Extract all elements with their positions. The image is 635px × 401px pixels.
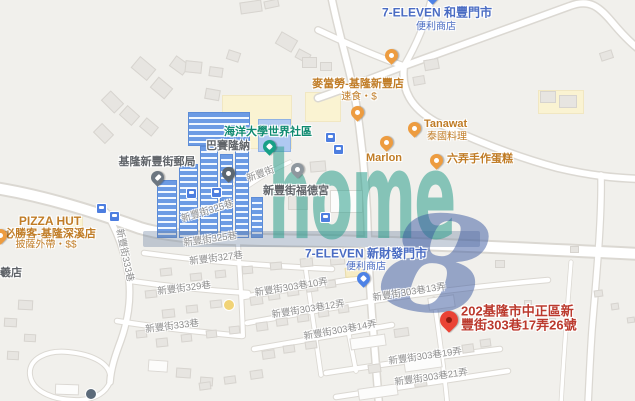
building xyxy=(611,302,620,310)
building xyxy=(199,381,212,391)
poi-label-barcelona[interactable]: 巴賽隆納 xyxy=(206,137,250,153)
highlighted-apartment-building xyxy=(251,197,263,238)
building xyxy=(540,91,556,103)
building xyxy=(249,369,263,380)
highlighted-apartment-building xyxy=(179,164,198,238)
bus-stop-icon[interactable] xyxy=(320,212,331,223)
poi-sublabel-seven-xincai: 便利商店 xyxy=(346,258,386,273)
building xyxy=(261,349,275,360)
building xyxy=(594,289,604,297)
building xyxy=(479,338,491,347)
building xyxy=(255,321,268,332)
map-canvas[interactable]: home 8 7-ELEVEN 和豐門市 便利商店 麥當勞-基隆新豐店 速食・$… xyxy=(0,0,635,401)
building xyxy=(461,343,474,354)
building xyxy=(186,304,199,313)
highlighted-apartment-building xyxy=(235,146,249,238)
bus-stop-icon[interactable] xyxy=(109,211,120,222)
building xyxy=(283,344,296,354)
building xyxy=(229,325,241,334)
building xyxy=(570,246,579,253)
poi-sublabel-seven-hefeng: 便利商店 xyxy=(416,18,456,33)
building xyxy=(148,359,169,372)
poi-label-post-office[interactable]: 基隆新豐街郵局 xyxy=(119,153,196,169)
building xyxy=(210,299,223,308)
bus-stop-icon[interactable] xyxy=(325,132,336,143)
building xyxy=(55,384,79,396)
poi-sublabel-pizza-hut: 披薩外帶・$$ xyxy=(15,236,76,251)
bus-stop-icon[interactable] xyxy=(211,187,222,198)
building xyxy=(330,190,363,213)
building xyxy=(495,260,505,268)
building xyxy=(270,261,283,270)
poi-dot-yellow[interactable] xyxy=(223,299,235,311)
building xyxy=(184,60,202,74)
building xyxy=(367,363,381,374)
building xyxy=(288,196,308,210)
building xyxy=(145,289,158,298)
building xyxy=(206,329,218,338)
building xyxy=(224,375,237,385)
poi-sublabel-tanawat: 泰國料理 xyxy=(427,128,467,143)
building xyxy=(310,160,327,172)
building xyxy=(18,300,34,311)
building xyxy=(559,95,577,108)
building xyxy=(7,351,19,361)
building xyxy=(242,266,254,275)
poi-label-marlon[interactable]: Marlon xyxy=(366,152,402,164)
building xyxy=(4,318,17,328)
poi-label-fudegong-temple[interactable]: 新豐街福德宮 xyxy=(263,182,329,198)
building xyxy=(204,88,221,101)
building xyxy=(176,367,192,378)
building xyxy=(160,267,173,276)
building xyxy=(181,333,193,342)
poi-dot-dark[interactable] xyxy=(85,388,97,400)
building xyxy=(215,269,227,278)
building xyxy=(156,337,169,347)
bus-stop-icon[interactable] xyxy=(333,144,344,155)
bus-stop-icon[interactable] xyxy=(96,203,107,214)
destination-address-line2: 豐街303巷17弄26號 xyxy=(461,315,577,334)
poi-sublabel-mcdonalds: 速食・$ xyxy=(341,88,377,103)
building xyxy=(208,66,223,78)
highlighted-apartment-building xyxy=(157,180,177,238)
bus-stop-icon[interactable] xyxy=(186,188,197,199)
poi-label-liunong[interactable]: 六弄手作蛋糕 xyxy=(447,150,513,166)
building xyxy=(302,57,317,68)
building xyxy=(627,316,635,323)
building xyxy=(24,334,36,343)
road-network xyxy=(0,0,635,401)
building xyxy=(320,62,332,71)
poi-label-partial-shop: 羲店 xyxy=(0,264,22,280)
